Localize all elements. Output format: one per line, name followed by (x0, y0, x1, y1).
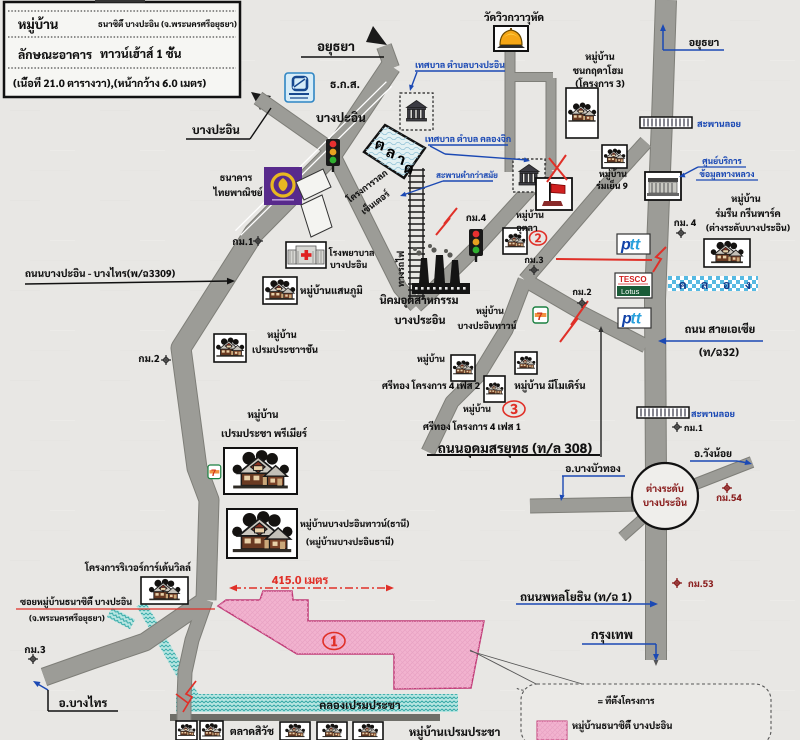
svg-text:7: 7 (537, 311, 543, 323)
svg-text:tt: tt (630, 237, 641, 254)
svg-text:tt: tt (631, 311, 642, 328)
svg-text:7: 7 (211, 468, 216, 478)
svg-text:Lotus: Lotus (621, 287, 640, 296)
svg-text:TESCO: TESCO (619, 275, 647, 284)
